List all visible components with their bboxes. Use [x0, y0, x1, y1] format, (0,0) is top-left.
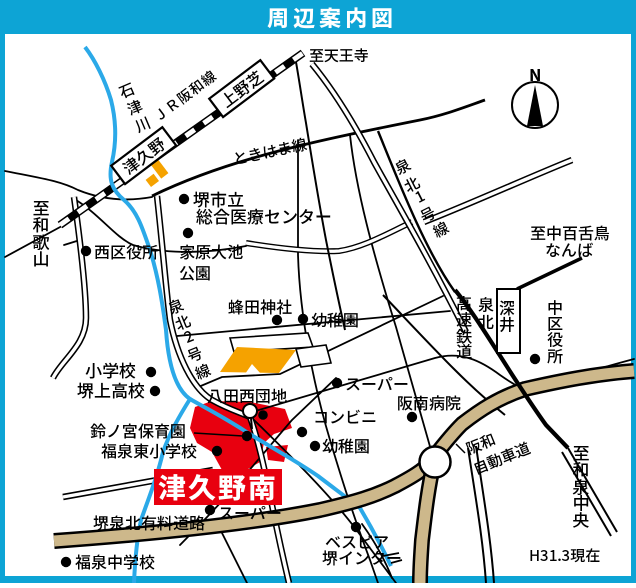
- svg-text:泉北: 泉北: [474, 296, 498, 329]
- svg-text:スーパー: スーパー: [218, 500, 282, 524]
- svg-text:N: N: [529, 62, 541, 86]
- svg-text:幼稚園: 幼稚園: [311, 307, 359, 331]
- svg-text:西区役所: 西区役所: [94, 239, 158, 263]
- svg-text:高速鉄道: 高速鉄道: [452, 295, 476, 360]
- svg-text:福泉東小学校: 福泉東小学校: [101, 438, 197, 462]
- svg-text:公園: 公園: [179, 260, 211, 284]
- svg-text:至天王寺: 至天王寺: [309, 45, 369, 66]
- svg-text:八田西団地: 八田西団地: [207, 383, 287, 407]
- svg-text:堺泉北有料道路: 堺泉北有料道路: [93, 510, 205, 534]
- svg-text:深井: 深井: [495, 299, 519, 333]
- svg-text:蜂田神社: 蜂田神社: [228, 294, 292, 318]
- svg-text:堺インター: 堺インター: [322, 545, 402, 569]
- svg-text:至和泉中央: 至和泉中央: [569, 444, 594, 529]
- svg-text:なんば: なんば: [545, 237, 593, 261]
- svg-text:阪南病院: 阪南病院: [397, 390, 461, 414]
- svg-text:総合医療センター: 総合医療センター: [196, 203, 332, 228]
- svg-text:中区役所: 中区役所: [543, 299, 567, 364]
- svg-text:堺上高校: 堺上高校: [77, 377, 145, 402]
- svg-text:周辺案内図: 周辺案内図: [267, 1, 397, 33]
- svg-text:コンビニ: コンビニ: [313, 404, 377, 428]
- svg-text:至和歌山: 至和歌山: [29, 199, 54, 267]
- svg-text:幼稚園: 幼稚園: [322, 433, 370, 457]
- svg-text:福泉中学校: 福泉中学校: [75, 549, 155, 573]
- svg-text:H31.3現在: H31.3現在: [529, 545, 600, 566]
